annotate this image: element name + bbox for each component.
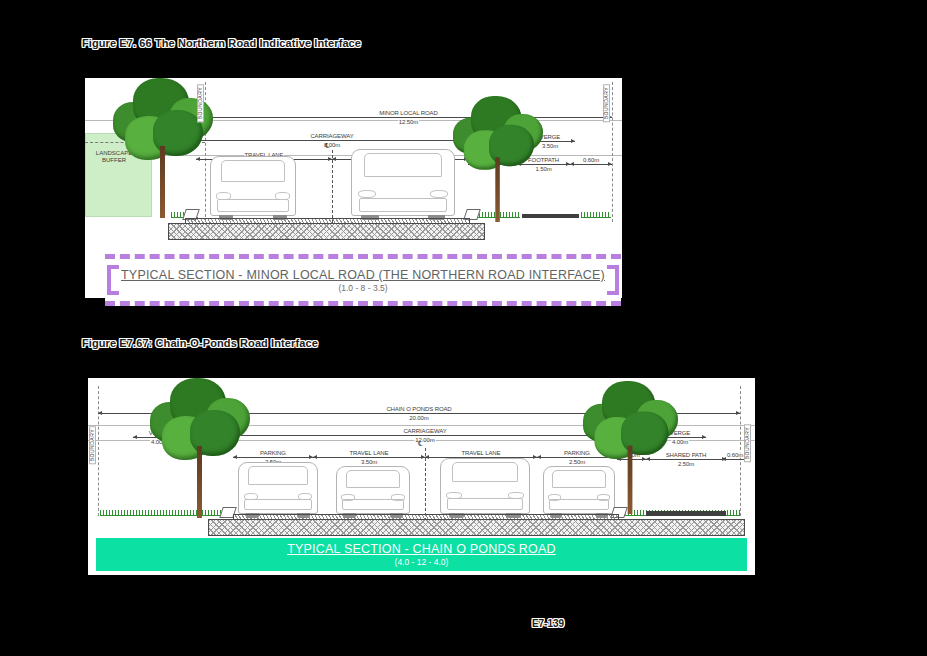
figure1-caption-dims: (1.0 - 8 - 3.5) <box>338 283 387 293</box>
road-base <box>168 223 485 240</box>
car-front-view <box>210 156 296 216</box>
parking-label: PARKING <box>259 450 287 456</box>
figure1-caption-title: TYPICAL SECTION - MINOR LOCAL ROAD (THE … <box>121 268 605 282</box>
road-name-label: MINOR LOCAL ROAD <box>378 110 439 116</box>
parked-ute-front-view <box>238 462 318 514</box>
offset-value: 0.60m <box>726 452 744 458</box>
road-name-label: CHAIN O PONDS ROAD <box>385 406 452 412</box>
road-base <box>208 519 745 536</box>
centerline-symbol: ℄ <box>325 142 330 150</box>
dim-road-reserve: MINOR LOCAL ROAD 12.50m <box>205 110 612 126</box>
car-front-view <box>336 466 410 514</box>
figure2-title: Figure E7.67: Chain-O-Ponds Road Interfa… <box>82 337 318 349</box>
figure1-caption-box: TYPICAL SECTION - MINOR LOCAL ROAD (THE … <box>105 254 621 306</box>
tree <box>150 378 250 518</box>
dim-carriageway: CARRIAGEWAY 12.00m <box>233 428 617 444</box>
tree <box>453 96 543 222</box>
grass-verge <box>581 212 611 218</box>
figure2-caption-banner: TYPICAL SECTION - CHAIN O PONDS ROAD (4.… <box>96 538 747 571</box>
carriageway-label: CARRIAGEWAY <box>402 428 447 434</box>
dim-offset-right: 0.60m <box>570 157 612 166</box>
boundary-tag-right: BOUNDARY <box>603 84 610 122</box>
boundary-line-right <box>612 82 613 222</box>
travel-lane-label: TRAVEL LANE <box>461 450 502 456</box>
travel-lane-label: TRAVEL LANE <box>349 450 390 456</box>
dim-travel-lane-left: TRAVEL LANE 3.50m <box>313 450 425 466</box>
boundary-tag-right: BOUNDARY <box>744 424 751 462</box>
van-rear-view <box>440 458 530 514</box>
boundary-tag-left: BOUNDARY <box>197 84 204 122</box>
carriageway-label: CARRIAGEWAY <box>309 133 354 139</box>
road-width-value: 20.00m <box>408 415 429 421</box>
travel-lane-width-value: 3.50m <box>360 459 378 465</box>
figure1-title: Figure E7. 66 The Northern Road Indicati… <box>82 37 361 49</box>
shared-path-width-value: 2.50m <box>677 461 695 467</box>
offset-value: 0.60m <box>582 157 600 163</box>
boundary-line-right <box>740 386 741 516</box>
dim-carriageway: CARRIAGEWAY 8.00m <box>196 133 468 149</box>
verge-width-value: 3.50m <box>541 143 559 149</box>
car-rear-view <box>351 149 455 216</box>
figure2-drawing: CHAIN O PONDS ROAD 20.00m CARRIAGEWAY 12… <box>88 378 755 575</box>
figure1-drawing: LANDSCAPE BUFFER MINOR LOCAL ROAD 12.50m… <box>85 78 622 298</box>
page-number: E7-139 <box>498 618 598 629</box>
boundary-tag-left: BOUNDARY <box>89 426 96 464</box>
tree <box>583 381 678 514</box>
centerline-symbol: ℄ <box>418 440 423 448</box>
road-width-value: 12.50m <box>398 119 419 125</box>
figure2-caption-title: TYPICAL SECTION - CHAIN O PONDS ROAD <box>287 542 556 556</box>
figure2-caption-dims: (4.0 - 12 - 4.0) <box>395 557 449 567</box>
